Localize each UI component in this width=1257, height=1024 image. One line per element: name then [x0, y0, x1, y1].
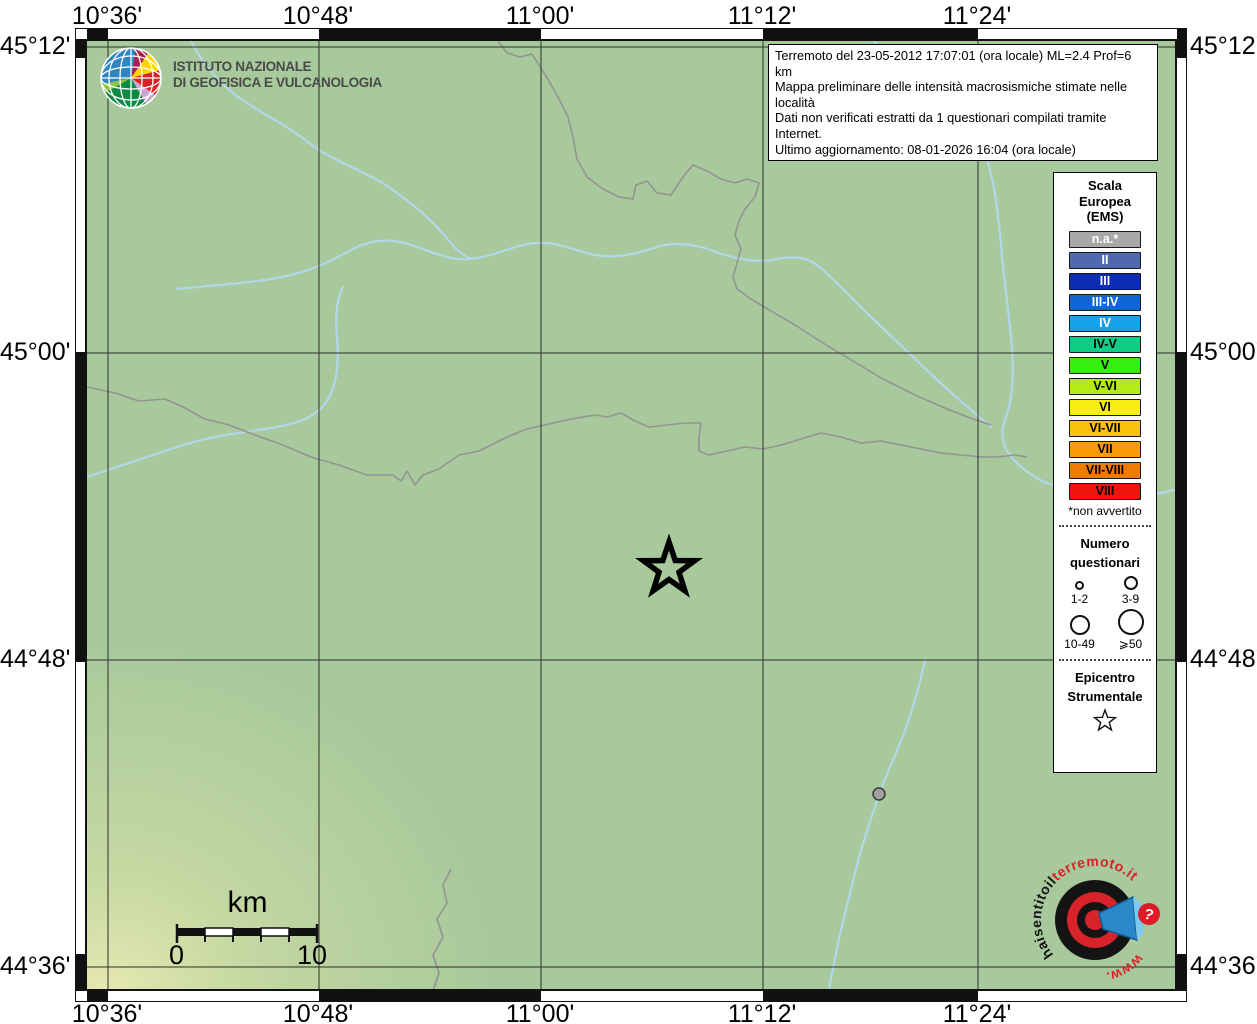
size-class-4-label: ⩾50 — [1119, 637, 1142, 652]
legend-panel: Scala Europea (EMS) n.a.*IIIIIIII-IVIVIV… — [1053, 172, 1157, 773]
legend-title-line2: Europea — [1054, 194, 1156, 210]
lon-label-bottom-4: 11°24' — [917, 1000, 1037, 1024]
epicenter-title-line1: Epicentro — [1054, 668, 1156, 687]
questionnaires-title-line2: questionari — [1054, 553, 1156, 572]
lat-label-right-3: 44°36' — [1190, 952, 1257, 981]
info-line-event: Terremoto del 23-05-2012 17:07:01 (ora l… — [775, 48, 1151, 79]
lat-label-left-1: 45°00' — [0, 338, 68, 367]
epicenter-title-line2: Strumentale — [1054, 687, 1156, 706]
circle-xlarge-icon — [1118, 609, 1144, 635]
ems-class-VIII: VIII — [1069, 483, 1141, 500]
questionnaire-size-key: 1-2 3-9 10-49 ⩾50 — [1054, 576, 1156, 652]
lat-label-right-0: 45°12' — [1190, 32, 1257, 61]
size-class-2-label: 3-9 — [1122, 592, 1139, 607]
intensity-point-marker — [873, 788, 885, 800]
info-line-mapdesc: Mappa preliminare delle intensità macros… — [775, 79, 1151, 110]
ingv-logo-text: ISTITUTO NAZIONALE DI GEOFISICA E VULCAN… — [173, 59, 382, 91]
legend-footnote: *non avvertito — [1054, 504, 1156, 518]
question-mark-badge: ? — [1138, 903, 1160, 925]
lon-label-bottom-3: 11°12' — [702, 1000, 822, 1024]
lat-label-left-3: 44°36' — [0, 952, 68, 981]
epicenter-star-marker — [643, 542, 694, 591]
lon-label-top-3: 11°12' — [702, 2, 822, 31]
ems-class-VI: VI — [1069, 399, 1141, 416]
ems-class-na: n.a.* — [1069, 231, 1141, 248]
frame-band-right — [1176, 40, 1187, 990]
earthquake-info-box: Terremoto del 23-05-2012 17:07:01 (ora l… — [768, 44, 1158, 161]
macroseismic-map-page: 10°36' 10°48' 11°00' 11°12' 11°24' 10°36… — [0, 0, 1257, 1024]
ingv-logo-line2: DI GEOFISICA E VULCANOLOGIA — [173, 75, 382, 91]
map-graphics — [87, 41, 1176, 990]
lon-label-top-2: 11°00' — [480, 2, 600, 31]
scale-bar-start: 0 — [169, 940, 184, 971]
ems-intensity-scale: n.a.*IIIIIIII-IVIVIV-VVV-VIVIVI-VIIVIIVI… — [1054, 231, 1156, 500]
lon-label-top-0: 10°36' — [47, 2, 167, 31]
legend-divider — [1059, 659, 1151, 661]
size-class-3: 10-49 — [1054, 609, 1105, 652]
questionnaires-title: Numero questionari — [1054, 534, 1156, 572]
ems-class-IV: IV — [1069, 315, 1141, 332]
ems-class-II: II — [1069, 252, 1141, 269]
ems-class-VIVII: VI-VII — [1069, 420, 1141, 437]
size-class-4: ⩾50 — [1105, 609, 1156, 652]
lon-label-bottom-2: 11°00' — [480, 1000, 600, 1024]
size-class-2: 3-9 — [1105, 576, 1156, 607]
frame-band-left — [75, 40, 86, 990]
lat-label-right-1: 45°00' — [1190, 338, 1257, 367]
legend-divider — [1059, 525, 1151, 527]
info-line-data: Dati non verificati estratti da 1 questi… — [775, 110, 1151, 141]
lon-label-top-1: 10°48' — [258, 2, 378, 31]
circle-small-icon — [1075, 581, 1084, 590]
ems-class-VVI: V-VI — [1069, 378, 1141, 395]
size-class-1-label: 1-2 — [1071, 592, 1088, 607]
epicenter-star-icon — [1092, 708, 1118, 733]
legend-title-line3: (EMS) — [1054, 209, 1156, 225]
ems-class-VIIVIII: VII-VIII — [1069, 462, 1141, 479]
haisentitoilterremoto-logo: ? haisentitoilterremoto.it www. — [1033, 852, 1169, 988]
info-line-updated: Ultimo aggiornamento: 08-01-2026 16:04 (… — [775, 142, 1151, 158]
ingv-logo-line1: ISTITUTO NAZIONALE — [173, 59, 382, 75]
legend-title: Scala Europea (EMS) — [1054, 178, 1156, 225]
size-class-1: 1-2 — [1054, 576, 1105, 607]
size-class-3-label: 10-49 — [1064, 637, 1095, 652]
ingv-globe-logo-icon — [99, 46, 163, 110]
ems-class-VII: VII — [1069, 441, 1141, 458]
ems-class-III: III — [1069, 273, 1141, 290]
lon-label-bottom-0: 10°36' — [47, 1000, 167, 1024]
ems-class-V: V — [1069, 357, 1141, 374]
terrain-tint — [87, 521, 607, 990]
lat-label-right-2: 44°48' — [1190, 645, 1257, 674]
legend-title-line1: Scala — [1054, 178, 1156, 194]
lon-label-top-4: 11°24' — [917, 2, 1037, 31]
circle-medium-icon — [1124, 576, 1138, 590]
epicenter-title: Epicentro Strumentale — [1054, 668, 1156, 706]
questionnaires-title-line1: Numero — [1054, 534, 1156, 553]
scale-bar-unit: km — [177, 886, 318, 920]
map-canvas — [86, 40, 1176, 990]
scale-bar-end: 10 — [297, 940, 327, 971]
ems-class-IIIIV: III-IV — [1069, 294, 1141, 311]
lat-label-left-0: 45°12' — [0, 32, 68, 61]
lon-label-bottom-1: 10°48' — [258, 1000, 378, 1024]
ems-class-IVV: IV-V — [1069, 336, 1141, 353]
lat-label-left-2: 44°48' — [0, 645, 68, 674]
circle-large-icon — [1070, 615, 1090, 635]
